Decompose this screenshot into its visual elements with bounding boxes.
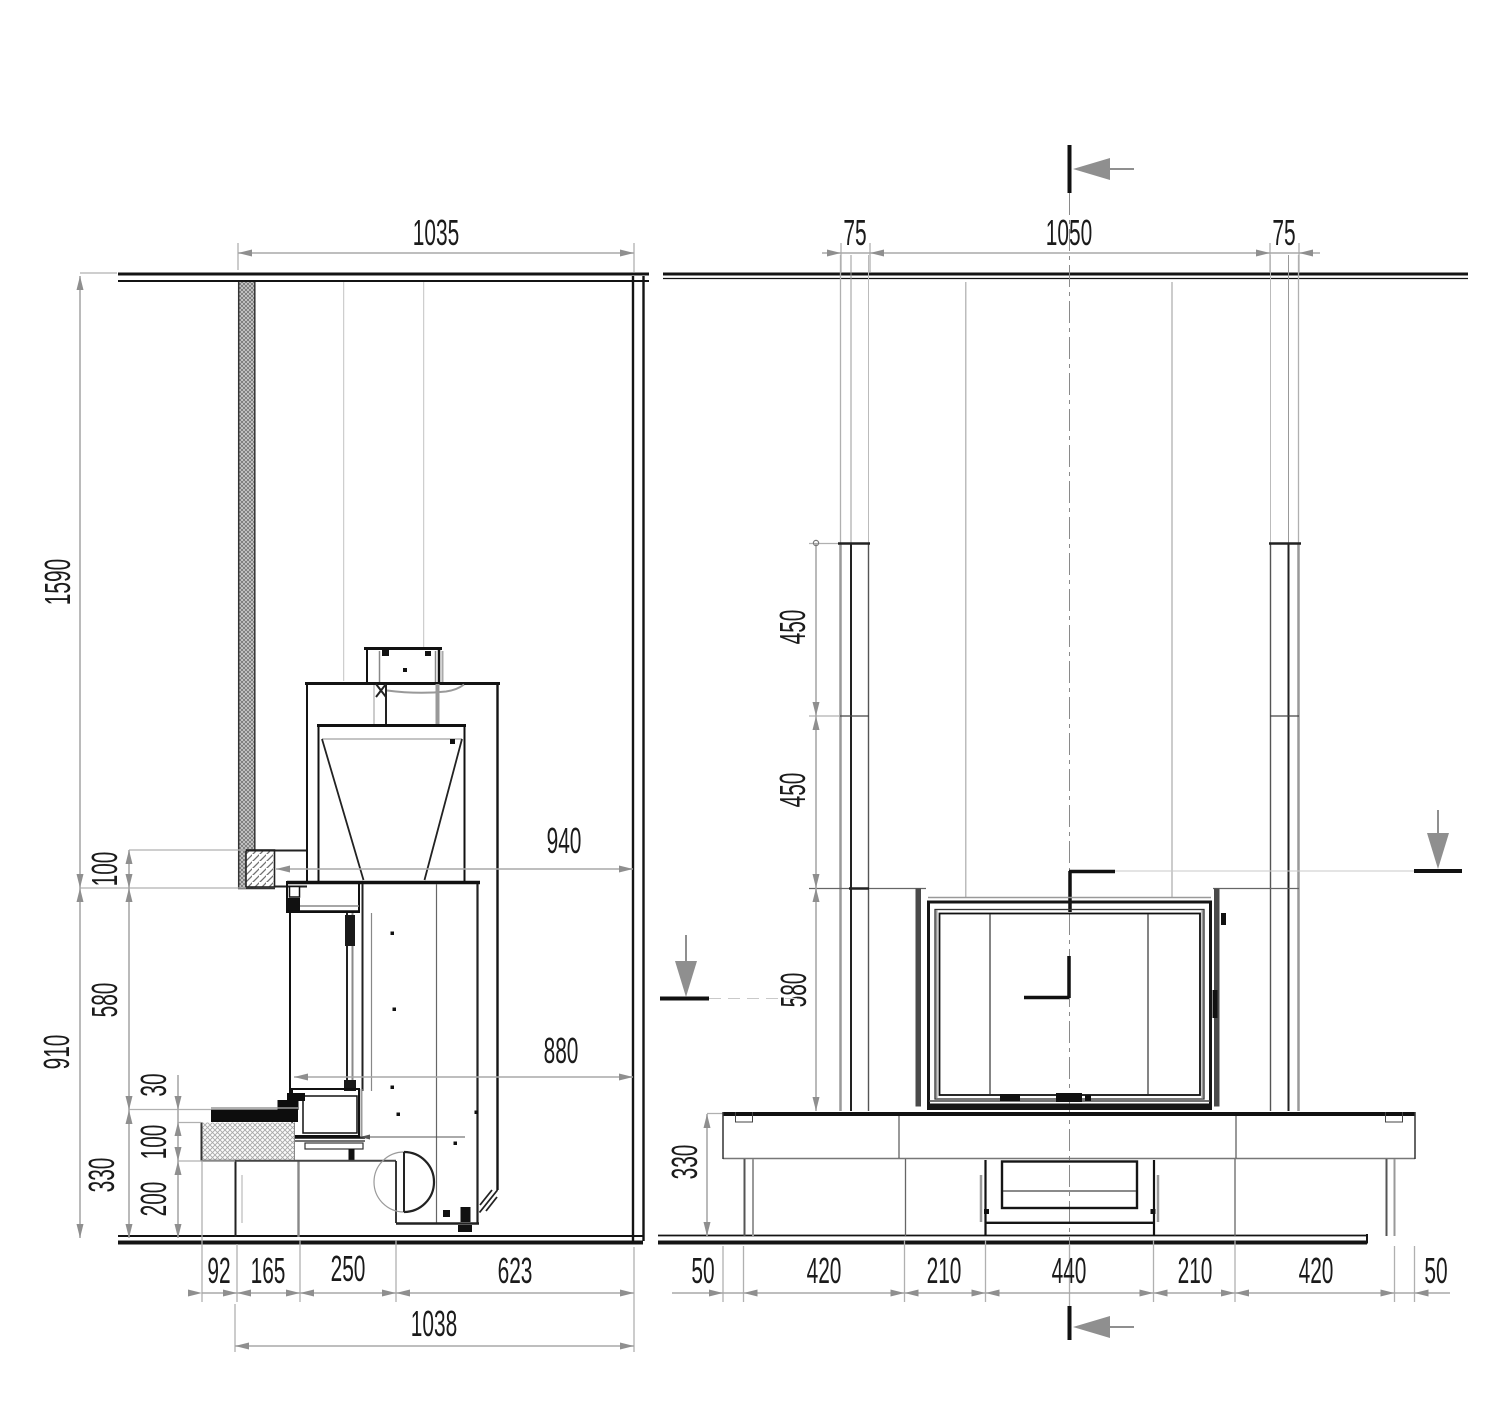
svg-text:30: 30 bbox=[134, 1073, 174, 1096]
svg-text:880: 880 bbox=[544, 1031, 579, 1071]
svg-text:1038: 1038 bbox=[411, 1304, 457, 1344]
svg-text:420: 420 bbox=[807, 1251, 842, 1291]
svg-text:75: 75 bbox=[843, 213, 866, 253]
svg-text:250: 250 bbox=[331, 1249, 366, 1289]
svg-text:92: 92 bbox=[207, 1251, 230, 1291]
svg-text:50: 50 bbox=[691, 1251, 714, 1291]
svg-text:580: 580 bbox=[85, 983, 125, 1018]
svg-text:450: 450 bbox=[773, 610, 813, 645]
svg-text:440: 440 bbox=[1052, 1251, 1087, 1291]
svg-text:623: 623 bbox=[498, 1251, 533, 1291]
svg-text:330: 330 bbox=[665, 1145, 705, 1180]
svg-text:450: 450 bbox=[773, 773, 813, 808]
svg-text:100: 100 bbox=[85, 852, 125, 887]
svg-text:330: 330 bbox=[82, 1158, 122, 1193]
svg-text:1050: 1050 bbox=[1046, 213, 1092, 253]
svg-text:580: 580 bbox=[774, 973, 814, 1008]
svg-text:210: 210 bbox=[1178, 1251, 1213, 1291]
svg-text:100: 100 bbox=[134, 1125, 174, 1160]
svg-text:940: 940 bbox=[547, 821, 582, 861]
svg-text:75: 75 bbox=[1272, 213, 1295, 253]
svg-text:910: 910 bbox=[37, 1035, 77, 1070]
svg-text:200: 200 bbox=[134, 1182, 174, 1217]
svg-text:210: 210 bbox=[927, 1251, 962, 1291]
svg-text:50: 50 bbox=[1424, 1251, 1447, 1291]
svg-text:1590: 1590 bbox=[38, 559, 78, 605]
svg-text:1035: 1035 bbox=[413, 213, 459, 253]
svg-text:165: 165 bbox=[251, 1251, 286, 1291]
svg-text:420: 420 bbox=[1299, 1251, 1334, 1291]
